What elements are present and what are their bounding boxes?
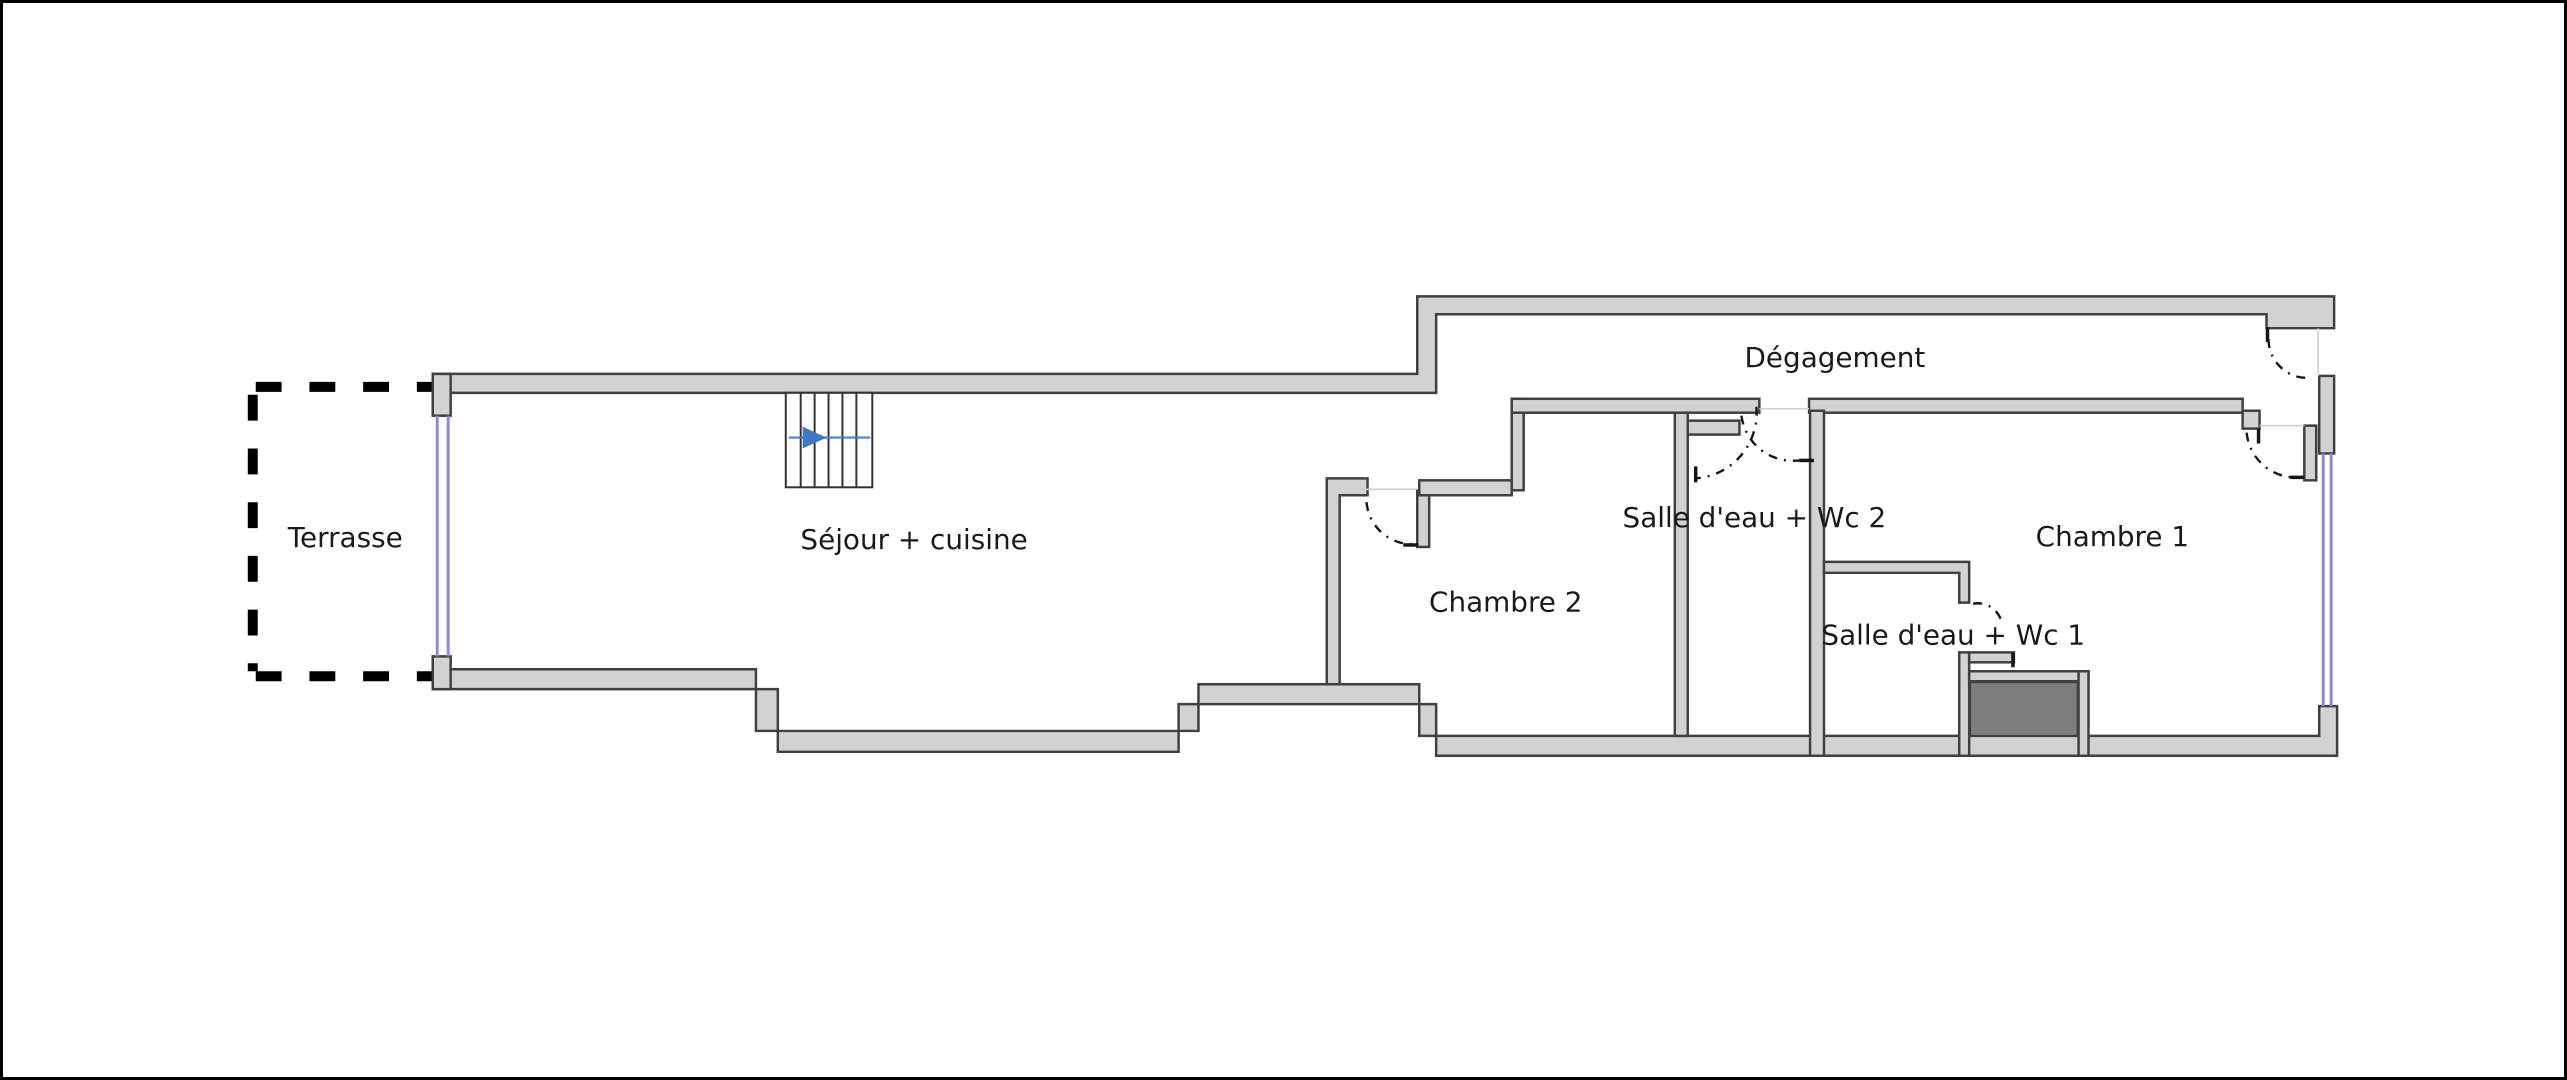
room-label-chambre-1: Chambre 1 (2036, 520, 2189, 553)
door-sde2-right-swing (1741, 416, 1799, 461)
wall-shower-top (1969, 671, 2088, 681)
wall-left-cap-top (433, 374, 451, 416)
wall-chambre2-left (1327, 478, 1368, 684)
wall-sde2-chambre1 (1810, 411, 1824, 756)
room-label-degagement: Dégagement (1744, 341, 1925, 374)
wall-sde1-top (1824, 562, 1969, 603)
room-label-salle-eau-wc-2: Salle d'eau + Wc 2 (1623, 501, 1887, 534)
windows (437, 416, 2331, 706)
door-entrance-swing (2268, 339, 2307, 378)
door-chambre2-swing (1367, 502, 1417, 544)
wall-corridor-south-a (1512, 399, 1760, 413)
room-label-salle-eau-wc-1: Salle d'eau + Wc 1 (1821, 618, 2085, 651)
wall-right-top (2319, 376, 2334, 454)
wall-corridor-south-b (1809, 399, 2243, 413)
stairs (786, 393, 873, 487)
floor-plan-canvas: Terrasse Séjour + cuisine Chambre 2 Sall… (0, 0, 2567, 1080)
shower-tray (1970, 682, 2077, 736)
wall-chambre2-top (1419, 480, 1511, 495)
room-label-chambre-2: Chambre 2 (1429, 586, 1582, 619)
room-label-sejour-cuisine: Séjour + cuisine (800, 523, 1027, 556)
wall-shower-right (2079, 671, 2089, 756)
floor-plan-svg: Terrasse Séjour + cuisine Chambre 2 Sall… (3, 3, 2564, 1077)
wall-sde2-stub (1688, 421, 1740, 435)
wall-chambre1-door-step (2243, 411, 2260, 429)
door-sde2-left-swing (1697, 407, 1757, 479)
wall-shower-left (1959, 652, 1969, 755)
door-chambre1-swing (2247, 433, 2301, 478)
wall-left-cap-bottom (433, 656, 451, 689)
wall-top (433, 296, 2334, 392)
room-label-terrasse: Terrasse (287, 521, 403, 554)
door-sde1-leaf (1969, 652, 2014, 662)
window-left (437, 416, 448, 657)
wall-chambre2-door-jamb (1417, 490, 1429, 547)
wall-chambre1-door-jamb (2304, 426, 2316, 481)
window-right (2323, 453, 2331, 706)
wall-chambre2-sde2 (1675, 413, 1688, 736)
